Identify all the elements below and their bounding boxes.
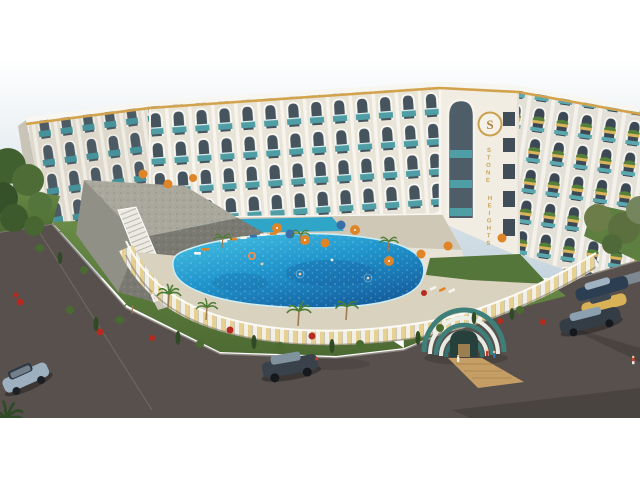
- render-frame: S STONE HEIGHTS: [0, 0, 640, 480]
- tower-arch-column: [448, 100, 474, 218]
- brand-logo: S: [479, 113, 502, 136]
- scene-illustration: S STONE HEIGHTS: [0, 58, 640, 418]
- pedestrian-garden: [152, 292, 154, 299]
- logo-letter: S: [486, 117, 493, 132]
- pedestrian-right-edge: [632, 356, 635, 364]
- letterbox-bottom: [0, 418, 640, 480]
- letterbox-top: [0, 0, 640, 58]
- wing-joint: [518, 88, 519, 254]
- render-scene: S STONE HEIGHTS: [0, 58, 640, 418]
